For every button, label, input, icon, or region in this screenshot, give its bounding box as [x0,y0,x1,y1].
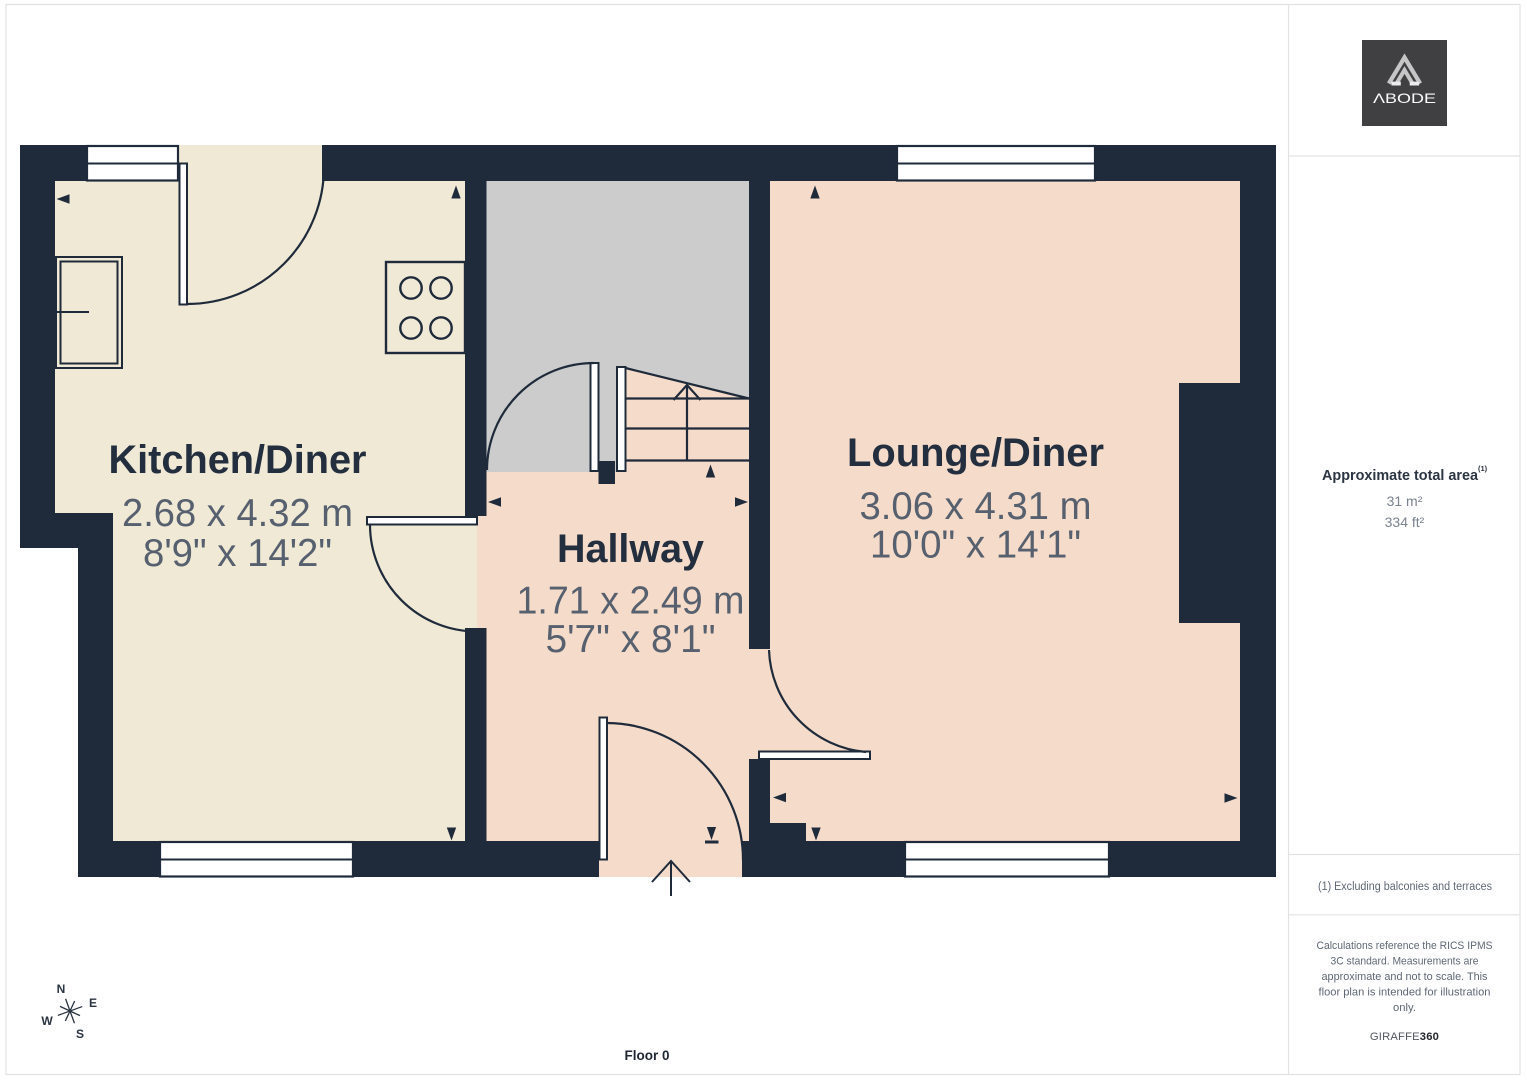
svg-text:Floor 0: Floor 0 [624,1048,669,1063]
svg-text:GIRAFFE360: GIRAFFE360 [1370,1031,1439,1043]
svg-text:Kitchen/Diner: Kitchen/Diner [109,438,367,482]
svg-text:Hallway: Hallway [557,527,704,571]
svg-text:8'9" x 14'2": 8'9" x 14'2" [143,532,332,575]
svg-text:S: S [76,1027,84,1041]
svg-text:3C standard. Measurements are: 3C standard. Measurements are [1331,956,1479,968]
svg-text:5'7" x 8'1": 5'7" x 8'1" [546,618,716,661]
svg-text:(1) Excluding balconies and te: (1) Excluding balconies and terraces [1318,881,1492,893]
svg-text:approximate and not to scale.: approximate and not to scale. This [1322,971,1488,983]
svg-text:31 m²: 31 m² [1387,493,1423,509]
svg-text:Approximate total area: Approximate total area [1322,467,1479,484]
svg-text:Calculations reference the RIC: Calculations reference the RICS IPMS [1317,940,1493,952]
svg-text:floor plan is intended for ill: floor plan is intended for illustration [1319,987,1491,999]
svg-text:N: N [57,982,66,996]
svg-text:ΛBODE: ΛBODE [1373,90,1436,106]
svg-text:W: W [41,1014,53,1028]
svg-text:334 ft²: 334 ft² [1385,514,1425,530]
svg-text:1.71 x 2.49 m: 1.71 x 2.49 m [517,580,745,623]
svg-text:Lounge/Diner: Lounge/Diner [847,431,1104,475]
svg-text:E: E [89,996,97,1010]
svg-text:(1): (1) [1478,464,1488,473]
svg-text:2.68 x 4.32 m: 2.68 x 4.32 m [122,492,353,535]
svg-text:3.06 x 4.31 m: 3.06 x 4.31 m [860,485,1092,528]
svg-text:10'0" x 14'1": 10'0" x 14'1" [870,524,1081,567]
svg-text:only.: only. [1393,1002,1416,1014]
